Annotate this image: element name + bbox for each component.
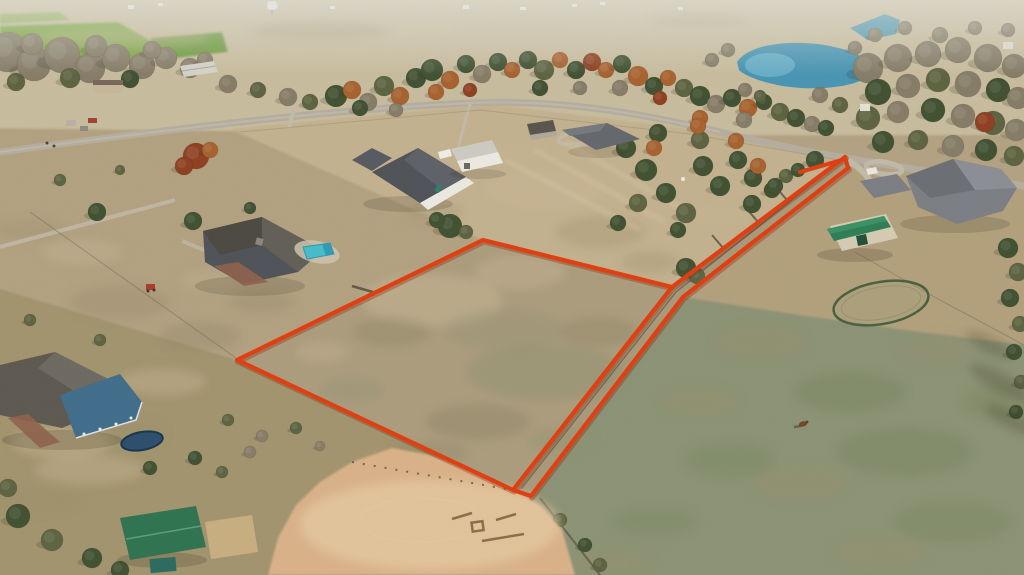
photo-grain	[0, 0, 1024, 575]
aerial-property-photo	[0, 0, 1024, 575]
photo-canvas	[0, 0, 1024, 575]
